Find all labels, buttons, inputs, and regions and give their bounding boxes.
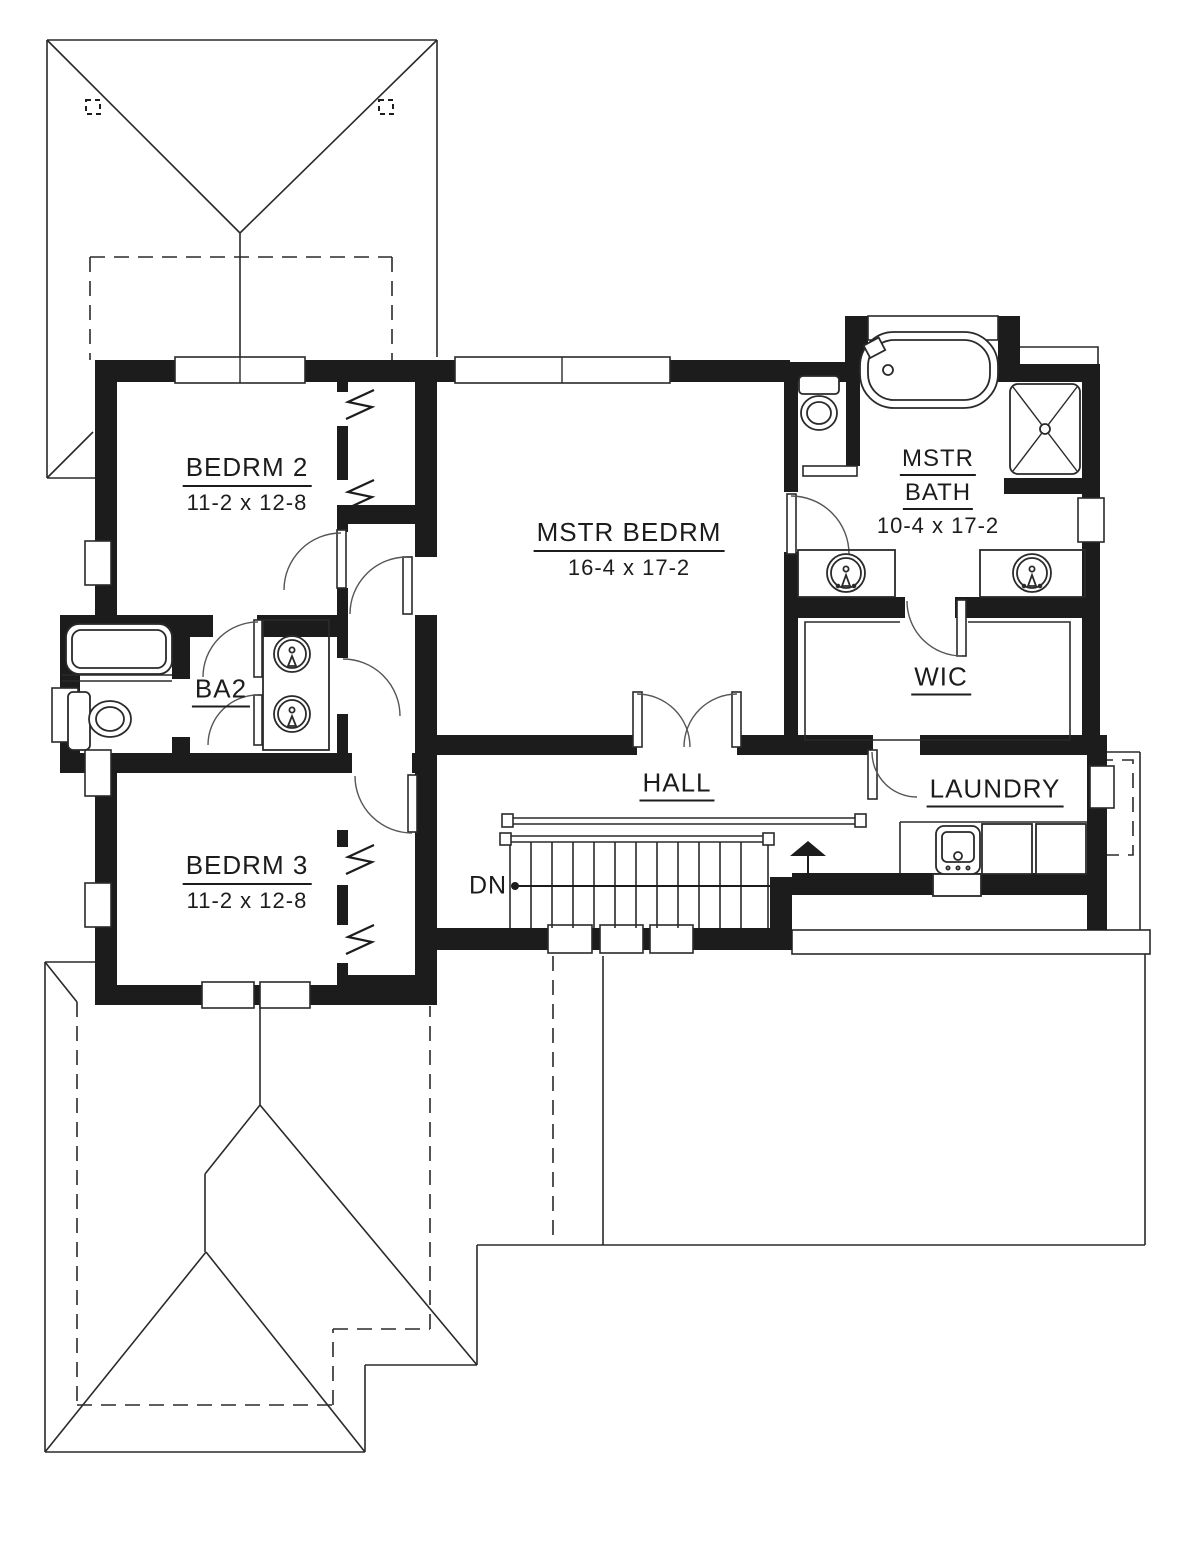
room-name: BEDRM 2 (183, 452, 312, 487)
room-dims: 11-2 x 12-8 (187, 888, 308, 914)
bathtub-mstr-icon (860, 332, 998, 408)
room-label-laundry: LAUNDRY (927, 774, 1064, 805)
laundry-sink-icon (933, 826, 981, 896)
room-name: LAUNDRY (927, 774, 1064, 808)
stairs-dn-label: DN (469, 872, 507, 901)
toilet-mstr-icon (799, 376, 839, 430)
floor-plan-drawing (0, 0, 1200, 1543)
room-dims: 10-4 x 17-2 (877, 513, 999, 539)
room-dims: 11-2 x 12-8 (187, 490, 308, 516)
room-name: MSTR BEDRM (534, 517, 725, 552)
stairs (500, 814, 866, 928)
room-label-hall: HALL (639, 768, 714, 799)
room-dims: 16-4 x 17-2 (568, 555, 690, 581)
room-label-mstr-bedrm: MSTR BEDRM 16-4 x 17-2 (534, 517, 725, 581)
room-name-line2: BATH (903, 479, 973, 510)
room-label-ba2: BA2 (192, 674, 250, 705)
room-label-bedrm2: BEDRM 2 11-2 x 12-8 (183, 452, 312, 516)
ba2-vanity (263, 620, 329, 750)
room-label-wic: WIC (911, 662, 971, 693)
roof-vent-icon (86, 100, 393, 114)
room-name: WIC (911, 662, 971, 696)
room-name: BA2 (192, 674, 250, 708)
ba2-sink2 (274, 696, 310, 732)
dryer-icon (1036, 824, 1086, 874)
room-name: BEDRM 3 (183, 850, 312, 885)
room-label-mstr-bath: MSTR BATH 10-4 x 17-2 (877, 445, 999, 539)
closet-pivot-door-icons (346, 390, 374, 954)
bathtub2-icon (66, 624, 172, 674)
toilet2-icon (68, 692, 131, 750)
mstr-vanity-right (980, 550, 1085, 597)
dn-text: DN (469, 872, 507, 900)
floor-plan: BEDRM 2 11-2 x 12-8 MSTR BEDRM 16-4 x 17… (0, 0, 1200, 1543)
room-name: HALL (639, 768, 714, 802)
mstr-vanity-left (798, 550, 895, 597)
room-name-line1: MSTR (900, 445, 976, 476)
shower-icon (1010, 384, 1080, 474)
room-label-bedrm3: BEDRM 3 11-2 x 12-8 (183, 850, 312, 914)
washer-icon (982, 824, 1032, 874)
